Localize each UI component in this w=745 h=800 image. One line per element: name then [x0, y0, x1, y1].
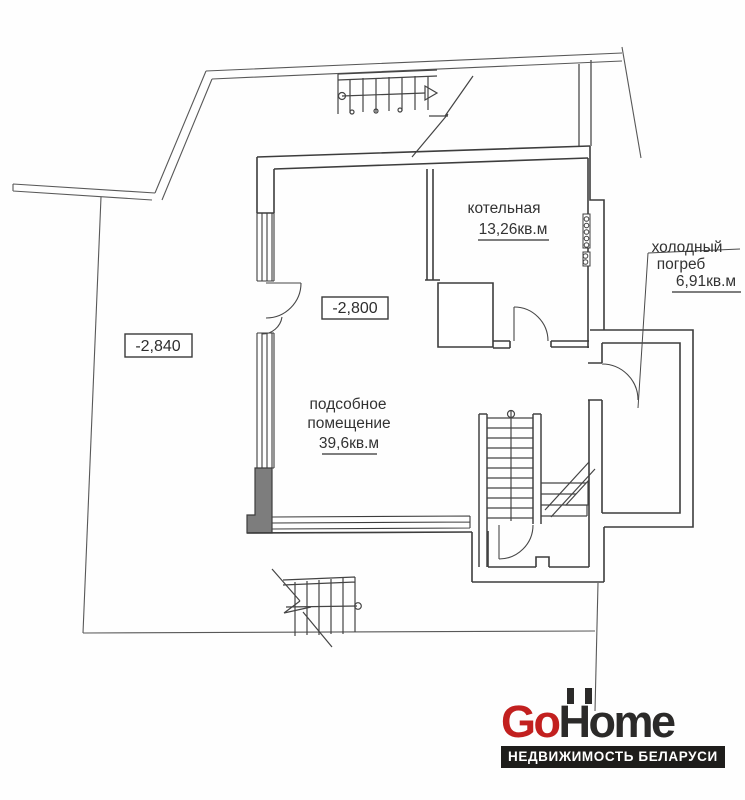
window-south-band — [272, 516, 470, 529]
window-west-2 — [257, 333, 274, 468]
stair-rails — [338, 70, 437, 114]
door-boiler — [514, 307, 548, 341]
stair-arrow-head — [425, 86, 437, 100]
stair-treads — [487, 418, 533, 518]
lower-staircase — [272, 569, 361, 647]
masonry-pier — [247, 468, 272, 533]
stair-break-line — [272, 569, 332, 647]
site-retaining-wall — [579, 60, 591, 146]
logo-chimney-bar — [585, 688, 592, 704]
vent-circle-column — [583, 217, 589, 265]
elevation-mark-2800: -2,800 — [322, 297, 388, 319]
room-label-utility: подсобное помещение 39,6кв.м — [307, 396, 390, 454]
logo-chimney-bar — [567, 688, 574, 704]
elevation-mark-2840: -2,840 — [125, 334, 192, 357]
room-name-line1: холодный — [652, 239, 723, 256]
elevation-value: -2,800 — [332, 300, 377, 317]
site-boundary-left-wall — [13, 184, 155, 200]
room-area: 39,6кв.м — [319, 435, 379, 452]
boiler-block — [438, 283, 493, 347]
logo-text-go: Go — [501, 696, 559, 747]
door-cellar — [602, 364, 638, 400]
window-west-1 — [257, 213, 274, 281]
north-wall — [257, 146, 590, 169]
site-boundary-west — [83, 197, 101, 633]
room-labels: котельная 13,26кв.м холодный погреб 6,91… — [307, 200, 741, 454]
lobby-south-wall — [472, 557, 604, 582]
door-west — [262, 283, 301, 334]
room-area: 13,26кв.м — [479, 221, 548, 238]
gohome-wordmark: GoHome — [501, 699, 721, 744]
stair-right-wall — [533, 414, 541, 524]
floor-plan-sheet: -2,800 -2,840 котельная 13,26кв.м холодн… — [0, 0, 745, 800]
room-name-line2: погреб — [657, 256, 706, 273]
site-boundary — [13, 47, 641, 711]
boiler-partition-wall — [425, 169, 440, 280]
elevation-value: -2,840 — [135, 338, 180, 355]
internal-staircase — [479, 411, 595, 568]
upper-staircase — [338, 70, 473, 157]
room-name-line2: помещение — [307, 415, 390, 432]
gohome-logo: GoHome НЕДВИЖИМОСТЬ БЕЛАРУСИ — [501, 699, 721, 768]
site-boundary-top — [206, 53, 622, 79]
logo-text-home: Home — [559, 696, 674, 747]
door-stair-lobby — [499, 525, 533, 559]
room-label-boiler: котельная 13,26кв.м — [468, 200, 549, 240]
south-step-wall — [472, 531, 488, 582]
site-boundary-diagonal — [155, 71, 212, 200]
floor-plan-drawing: -2,800 -2,840 котельная 13,26кв.м холодн… — [0, 0, 745, 800]
site-boundary-south — [83, 631, 595, 633]
room-area: 6,91кв.м — [676, 273, 736, 290]
room-label-cold-cellar: холодный погреб 6,91кв.м — [652, 239, 741, 292]
south-wall-outer — [247, 532, 472, 533]
stair-break-line — [412, 76, 473, 157]
stair-direction-line — [286, 606, 357, 607]
logo-tagline: НЕДВИЖИМОСТЬ БЕЛАРУСИ — [501, 746, 725, 768]
room-name-line1: подсобное — [310, 396, 387, 413]
site-boundary-east — [595, 583, 598, 711]
boiler-south-wall — [493, 341, 589, 348]
room-name: котельная — [468, 200, 541, 217]
site-boundary-top-right-diagonal — [622, 47, 641, 158]
stair-break-triangle — [566, 481, 588, 505]
stair-direction-line — [342, 93, 425, 96]
west-wall-top-segment — [257, 157, 274, 213]
stair-left-wall — [479, 414, 487, 567]
cellar-inner-walls — [588, 343, 680, 513]
